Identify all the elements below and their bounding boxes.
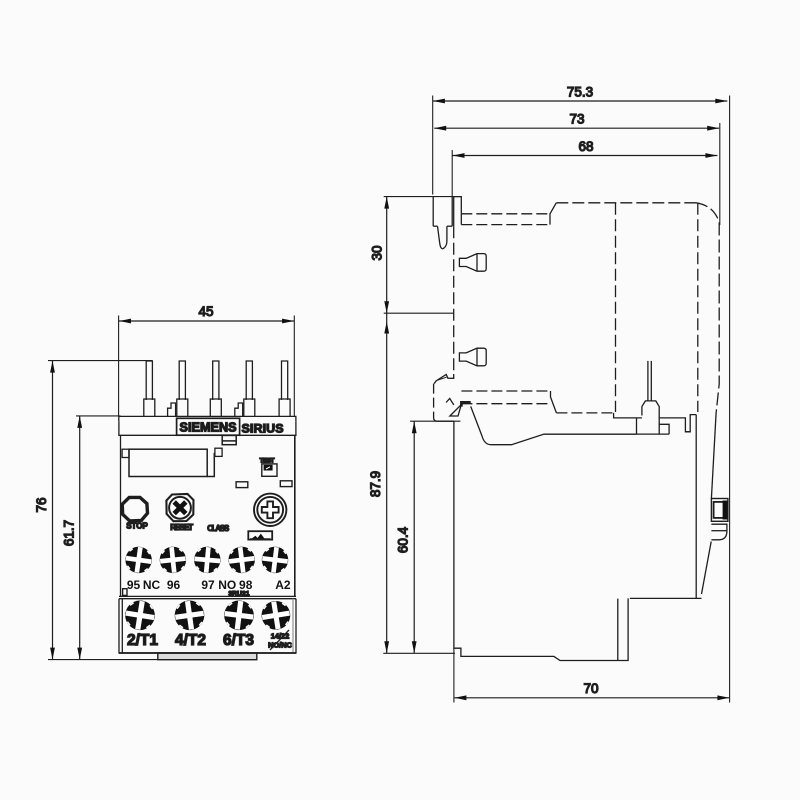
svg-text:RESET: RESET: [170, 523, 193, 532]
svg-text:96: 96: [167, 578, 181, 592]
svg-text:6/T3: 6/T3: [223, 632, 254, 649]
svg-text:60.4: 60.4: [396, 526, 411, 553]
svg-text:CLASS: CLASS: [207, 524, 230, 533]
svg-text:76: 76: [34, 497, 49, 512]
svg-text:95: 95: [127, 578, 141, 592]
svg-text:68: 68: [578, 139, 593, 154]
svg-text:97: 97: [201, 578, 215, 592]
svg-text:SIRIUS: SIRIUS: [242, 421, 284, 435]
svg-text:30: 30: [370, 245, 385, 260]
svg-text:2/T1: 2/T1: [127, 632, 158, 649]
svg-text:75.3: 75.3: [567, 85, 593, 100]
svg-text:45: 45: [198, 304, 213, 319]
svg-text:73: 73: [569, 112, 584, 127]
svg-text:61.7: 61.7: [62, 520, 77, 546]
svg-text:70: 70: [583, 681, 598, 696]
svg-text:STOP: STOP: [126, 522, 148, 531]
svg-text:NC: NC: [143, 578, 161, 592]
svg-text:SIEMENS: SIEMENS: [180, 421, 237, 435]
svg-text:4/T2: 4/T2: [175, 632, 206, 649]
svg-text:A2: A2: [275, 578, 291, 592]
svg-text:87.9: 87.9: [368, 471, 383, 497]
